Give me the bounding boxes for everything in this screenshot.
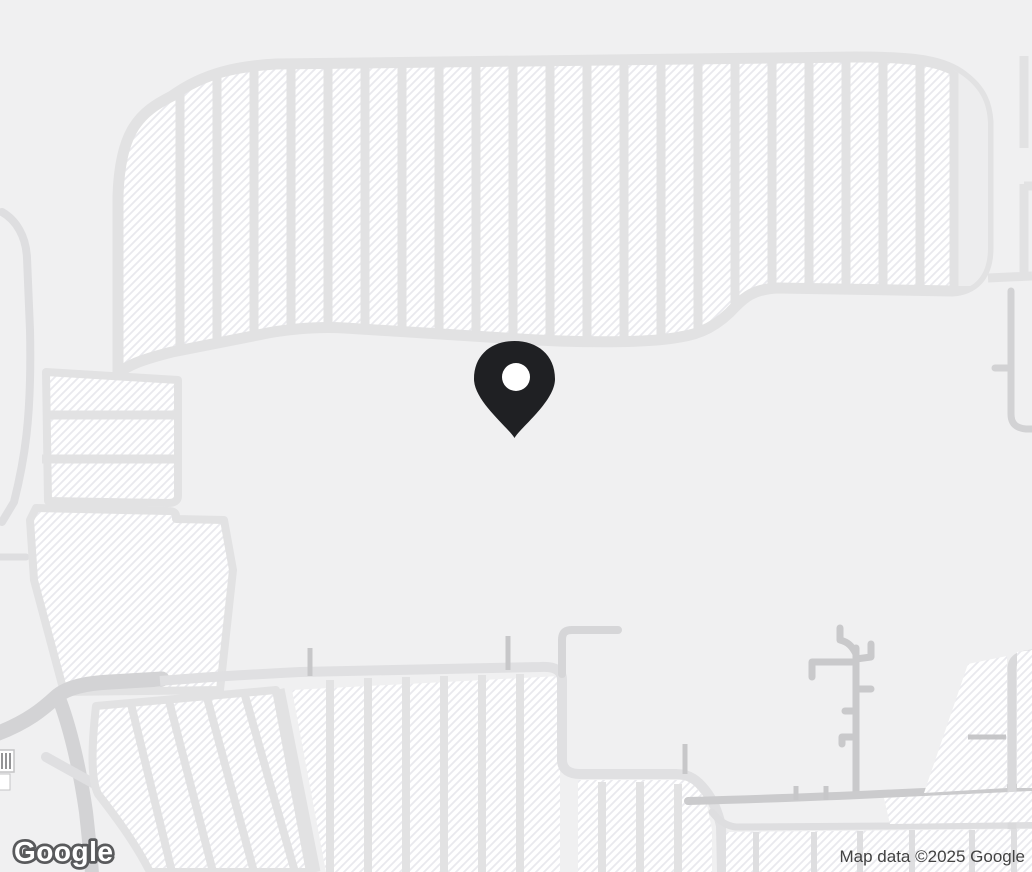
pin-hole: [502, 363, 530, 391]
left-parking-lot: [30, 372, 233, 692]
left-perimeter-road: [0, 212, 30, 557]
map-attribution: Map data ©2025 Google: [840, 847, 1026, 867]
top-parking-lot: [118, 50, 989, 374]
location-pin-icon[interactable]: [464, 331, 568, 443]
google-logo[interactable]: Google: [6, 830, 146, 872]
google-logo-text: Google: [14, 836, 113, 867]
small-striped-structure: [0, 750, 14, 790]
top-right-roads: [988, 56, 1032, 429]
right-edge-parking: [726, 650, 1032, 872]
map-canvas[interactable]: Google Map data ©2025 Google: [0, 0, 1032, 872]
